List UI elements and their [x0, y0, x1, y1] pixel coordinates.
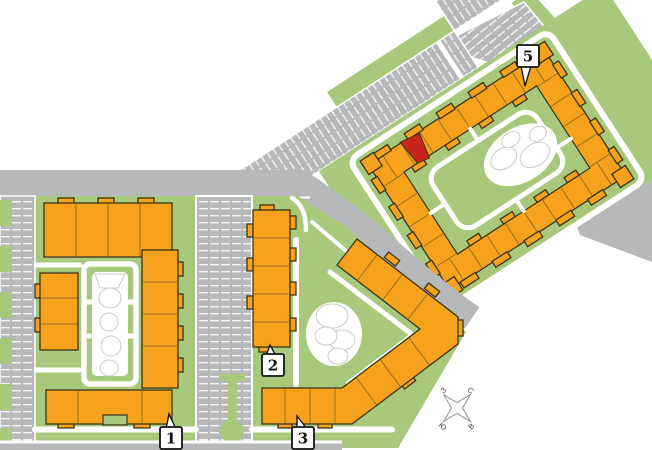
building-1-notch — [103, 415, 127, 425]
building-3-label-text: 3 — [298, 430, 308, 448]
compass-south-label: Ю — [437, 421, 449, 433]
building-2[interactable] — [247, 205, 296, 352]
site-plan-canvas: 1 2 3 5 С З Ю В — [0, 0, 652, 450]
compass-north-label: С — [466, 385, 476, 396]
building-1-label-text: 1 — [166, 430, 176, 448]
parking-lot-middle — [196, 196, 252, 448]
site-plan: 1 2 3 5 С З Ю В — [0, 0, 652, 450]
building-3-courtyard — [306, 302, 362, 366]
compass-west-label: З — [439, 385, 449, 395]
compass-east-label: В — [467, 421, 477, 431]
compass-rose: С З Ю В — [437, 385, 476, 432]
parking-lot-left — [0, 196, 35, 450]
building-2-label-text: 2 — [268, 357, 278, 375]
building-5-label-text: 5 — [523, 48, 533, 66]
